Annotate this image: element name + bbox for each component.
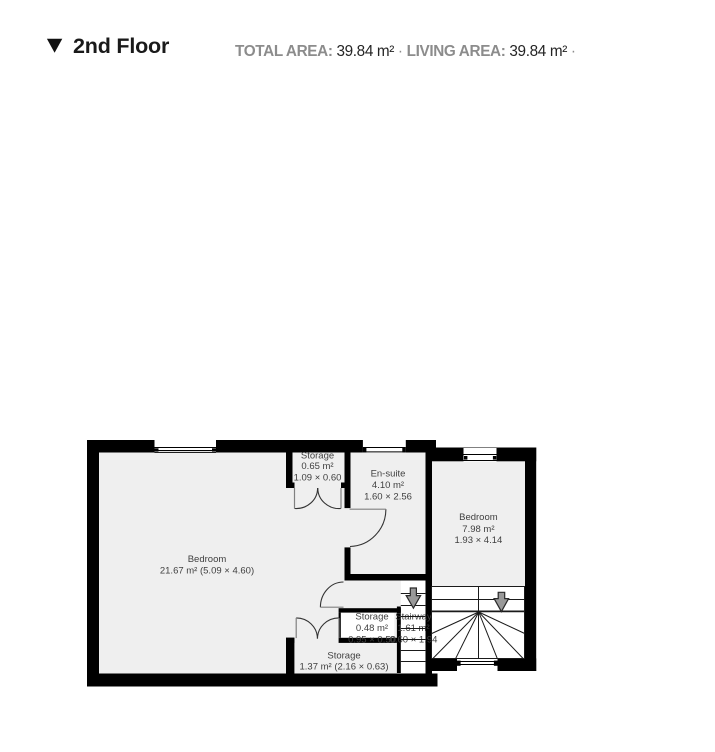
svg-text:Storage: Storage xyxy=(327,650,360,661)
svg-text:21.67 m² (5.09 × 4.60): 21.67 m² (5.09 × 4.60) xyxy=(160,565,254,576)
svg-text:7.98 m²: 7.98 m² xyxy=(462,524,494,535)
svg-text:Stairway: Stairway xyxy=(395,612,432,623)
svg-text:En-suite: En-suite xyxy=(371,468,406,479)
svg-text:0.65 m²: 0.65 m² xyxy=(301,461,333,472)
svg-text:0.95 × 0.50: 0.95 × 0.50 xyxy=(348,634,396,645)
svg-text:4.10 m²: 4.10 m² xyxy=(372,480,404,491)
svg-text:1.09 × 0.60: 1.09 × 0.60 xyxy=(294,473,342,484)
svg-text:1.93 × 4.14: 1.93 × 4.14 xyxy=(454,535,502,546)
svg-text:1.60 × 2.56: 1.60 × 2.56 xyxy=(364,491,412,502)
svg-text:0.48 m²: 0.48 m² xyxy=(356,623,388,634)
svg-text:Storage: Storage xyxy=(355,612,388,623)
svg-text:Bedroom: Bedroom xyxy=(459,512,498,523)
svg-text:Storage: Storage xyxy=(301,451,334,462)
svg-text:Bedroom: Bedroom xyxy=(188,554,227,565)
svg-text:1.37 m² (2.16 × 0.63): 1.37 m² (2.16 × 0.63) xyxy=(300,662,389,673)
svg-text:TOTAL AREA: 39.84 m² · LIVING: TOTAL AREA: 39.84 m² · LIVING AREA: 39.8… xyxy=(235,43,576,60)
svg-text:2nd Floor: 2nd Floor xyxy=(73,34,170,58)
